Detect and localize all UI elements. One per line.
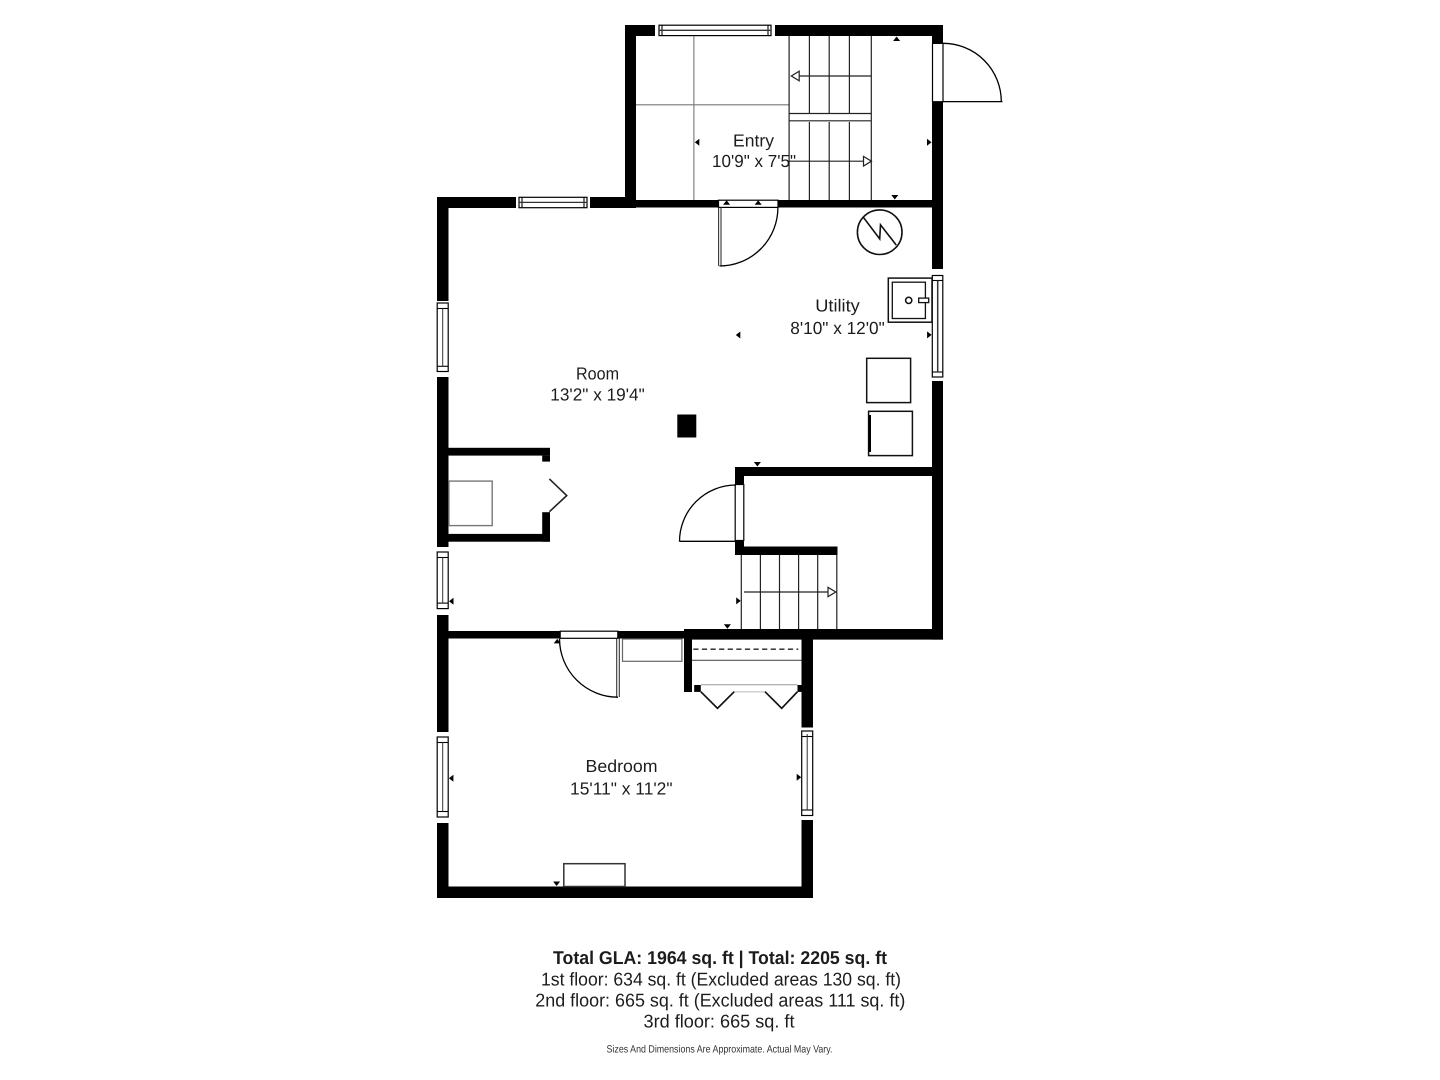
svg-text:Total GLA: 1964 sq. ft | Total: Total GLA: 1964 sq. ft | Total: 2205 sq.… (553, 947, 887, 969)
svg-text:3rd floor: 665 sq. ft: 3rd floor: 665 sq. ft (644, 1010, 795, 1031)
svg-text:13'2" x 19'4": 13'2" x 19'4" (550, 385, 645, 405)
svg-text:Room: Room (576, 364, 619, 384)
svg-text:Sizes And Dimensions Are Appro: Sizes And Dimensions Are Approximate. Ac… (607, 1044, 833, 1056)
svg-text:8'10" x 12'0": 8'10" x 12'0" (790, 318, 885, 338)
svg-text:1st floor: 634 sq. ft (Exclude: 1st floor: 634 sq. ft (Excluded areas 13… (541, 968, 901, 989)
svg-text:Bedroom: Bedroom (586, 756, 658, 776)
svg-text:15'11" x 11'2": 15'11" x 11'2" (570, 779, 673, 799)
svg-text:Entry: Entry (733, 130, 774, 150)
svg-text:2nd floor: 665 sq. ft (Exclude: 2nd floor: 665 sq. ft (Excluded areas 11… (535, 989, 905, 1010)
svg-text:Utility: Utility (815, 296, 860, 316)
svg-text:10'9" x 7'5": 10'9" x 7'5" (712, 151, 796, 171)
